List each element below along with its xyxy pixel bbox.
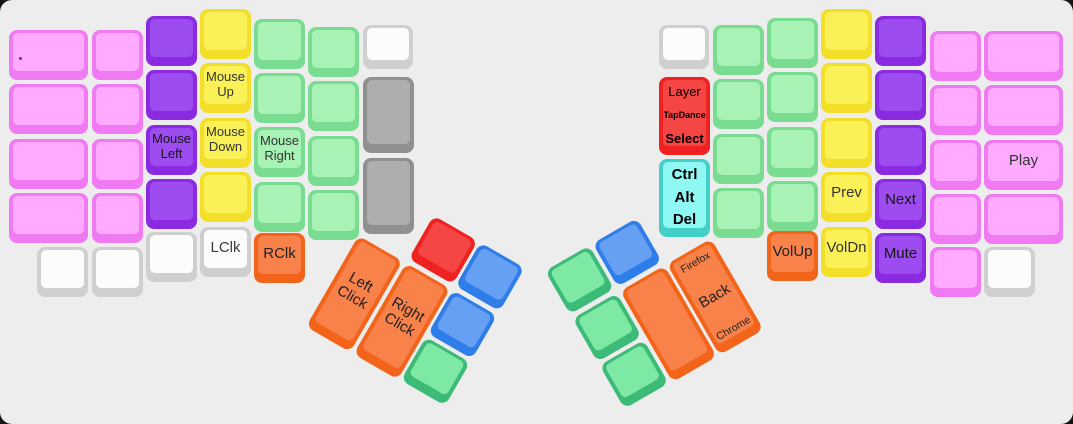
key-blank[interactable] [308, 136, 359, 186]
key-blank[interactable] [254, 73, 305, 123]
key-blank[interactable] [713, 79, 764, 129]
keycap-surface [771, 21, 814, 59]
keycap-surface [771, 130, 814, 168]
key-label-bot: Chrome [715, 315, 753, 343]
keycap-surface [463, 247, 519, 301]
key-label-stack: CtrlAltDel [659, 159, 710, 237]
keycap-surface [96, 250, 139, 288]
key-blank[interactable] [659, 25, 709, 69]
key-label-mid: Back [696, 281, 732, 311]
keycap-surface [13, 196, 84, 234]
key-play[interactable]: Play [984, 140, 1063, 190]
keycap-surface [879, 128, 922, 166]
key-label: Mute [875, 233, 926, 276]
tiny-glyph [19, 57, 22, 60]
key-blank[interactable] [875, 125, 926, 175]
keycap-surface [934, 250, 977, 288]
keycap-surface [717, 137, 760, 175]
key-blank[interactable] [767, 72, 818, 122]
keycap-surface [416, 220, 472, 274]
key-rclk[interactable]: RClk [254, 233, 305, 283]
key-blank[interactable] [146, 16, 197, 66]
key-label: VolDn [821, 227, 872, 270]
key-label-stack: LayerTapDanceSelect [659, 77, 710, 155]
keycap-surface [312, 193, 355, 231]
key-blank[interactable] [984, 31, 1063, 81]
key-blank[interactable] [200, 9, 251, 59]
key-blank[interactable] [363, 158, 414, 234]
keycap-surface [771, 75, 814, 113]
keycap-surface [825, 121, 868, 159]
key-blank[interactable] [308, 81, 359, 131]
key-blank[interactable] [37, 247, 88, 297]
keycap-surface [150, 182, 193, 220]
keycap-surface [988, 250, 1031, 288]
key-label: LClk [200, 227, 251, 270]
key-mouse-up[interactable]: MouseUp [200, 63, 251, 113]
key-blank[interactable] [92, 193, 143, 243]
keycap-surface [771, 184, 814, 222]
key-blank[interactable] [875, 70, 926, 120]
key-blank[interactable] [308, 27, 359, 77]
key-label-bot: Del [673, 212, 696, 227]
key-label: RClk [254, 233, 305, 276]
key-next[interactable]: Next [875, 179, 926, 229]
key-blank[interactable] [363, 25, 413, 69]
keycap-surface [597, 223, 653, 277]
key-blank[interactable] [200, 172, 251, 222]
key-blank[interactable] [713, 25, 764, 75]
keycap-surface [96, 87, 139, 125]
key-volup[interactable]: VolUp [767, 231, 818, 281]
key-blank[interactable] [821, 9, 872, 59]
key-blank[interactable] [92, 247, 143, 297]
key-lclk[interactable]: LClk [200, 227, 251, 277]
keycap-surface [367, 161, 410, 225]
key-blank[interactable] [930, 85, 981, 135]
keycap-surface [825, 66, 868, 104]
key-blank[interactable] [9, 193, 88, 243]
keycap-surface [988, 197, 1059, 235]
key-blank[interactable] [821, 118, 872, 168]
key-label: MouseDown [200, 118, 251, 161]
keycap-surface [934, 34, 977, 72]
keycap-surface [96, 142, 139, 180]
keycap-surface [312, 30, 355, 68]
keycap-surface [879, 19, 922, 57]
key-blank[interactable] [92, 30, 143, 80]
key-blank[interactable] [308, 190, 359, 240]
keycap-surface [550, 250, 606, 304]
key-blank[interactable] [146, 232, 197, 282]
keycap-surface [150, 235, 193, 273]
keycap-surface [934, 88, 977, 126]
keycap-surface [879, 73, 922, 111]
key-voldn[interactable]: VolDn [821, 227, 872, 277]
key-blank[interactable] [767, 18, 818, 68]
key-blank[interactable] [821, 63, 872, 113]
keycap-surface [312, 139, 355, 177]
key-blank[interactable] [92, 84, 143, 134]
keycap-surface [13, 87, 84, 125]
key-label-top: Layer [668, 85, 701, 98]
key-blank[interactable] [9, 139, 88, 189]
key-blank[interactable] [767, 181, 818, 231]
key-prev[interactable]: Prev [821, 172, 872, 222]
keycap-surface [988, 88, 1059, 126]
key-blank[interactable] [146, 70, 197, 120]
keycap-surface [204, 12, 247, 50]
key-blank[interactable] [254, 182, 305, 232]
keycap-surface [258, 185, 301, 223]
keycap-surface [13, 142, 84, 180]
keycap-surface [717, 28, 760, 66]
key-blank[interactable] [875, 16, 926, 66]
key-blank[interactable] [713, 188, 764, 238]
key-layer-tapdance-select[interactable]: LayerTapDanceSelect [659, 77, 710, 155]
key-blank[interactable] [930, 194, 981, 244]
keycap-surface [367, 28, 409, 60]
keycap-surface [258, 22, 301, 60]
key-mouse-down[interactable]: MouseDown [200, 118, 251, 168]
key-label-bot: Select [665, 132, 703, 145]
key-label: MouseUp [200, 63, 251, 106]
keycap-surface [577, 297, 633, 351]
keycap-surface [41, 250, 84, 288]
key-blank[interactable] [9, 84, 88, 134]
key-tiny-dot[interactable] [9, 30, 88, 80]
key-label-top: Firefox [679, 250, 712, 275]
keycap-surface [13, 33, 84, 71]
key-blank[interactable] [930, 140, 981, 190]
keycap-surface [988, 34, 1059, 72]
key-label: Play [984, 140, 1063, 183]
key-label: Prev [821, 172, 872, 215]
key-blank[interactable] [254, 19, 305, 69]
key-label: MouseRight [254, 127, 305, 170]
key-label-mid: TapDance [663, 111, 705, 120]
key-label: VolUp [767, 231, 818, 274]
keycap-surface [717, 191, 760, 229]
key-label-mid: Alt [675, 190, 695, 205]
keycap-surface [96, 196, 139, 234]
key-blank[interactable] [363, 77, 414, 153]
key-label-top: Ctrl [672, 167, 698, 182]
keycap-surface [150, 73, 193, 111]
keycap-surface [604, 344, 660, 398]
keycap-surface [150, 19, 193, 57]
keycap-surface [367, 80, 410, 144]
key-blank[interactable] [92, 139, 143, 189]
key-mute[interactable]: Mute [875, 233, 926, 283]
keycap-surface [204, 175, 247, 213]
key-label: MouseLeft [146, 125, 197, 168]
keycap-surface [258, 76, 301, 114]
key-ctrl-alt-del[interactable]: CtrlAltDel [659, 159, 710, 237]
keycap-surface [96, 33, 139, 71]
keycap-surface [717, 82, 760, 120]
keycap-surface [825, 12, 868, 50]
key-mouse-right[interactable]: MouseRight [254, 127, 305, 177]
key-blank[interactable] [930, 247, 981, 297]
key-label: Next [875, 179, 926, 222]
key-blank[interactable] [984, 194, 1063, 244]
keycap-surface [934, 197, 977, 235]
key-blank[interactable] [713, 134, 764, 184]
keycap-surface [312, 84, 355, 122]
key-blank[interactable] [984, 85, 1063, 135]
keycap-surface [663, 28, 705, 60]
key-blank[interactable] [930, 31, 981, 81]
key-blank[interactable] [984, 247, 1035, 297]
key-blank[interactable] [146, 179, 197, 229]
key-mouse-left[interactable]: MouseLeft [146, 125, 197, 175]
keymap-board: LeftClickRightClickFirefoxBackChromeMous… [0, 0, 1073, 424]
key-blank[interactable] [767, 127, 818, 177]
keycap-surface [934, 143, 977, 181]
